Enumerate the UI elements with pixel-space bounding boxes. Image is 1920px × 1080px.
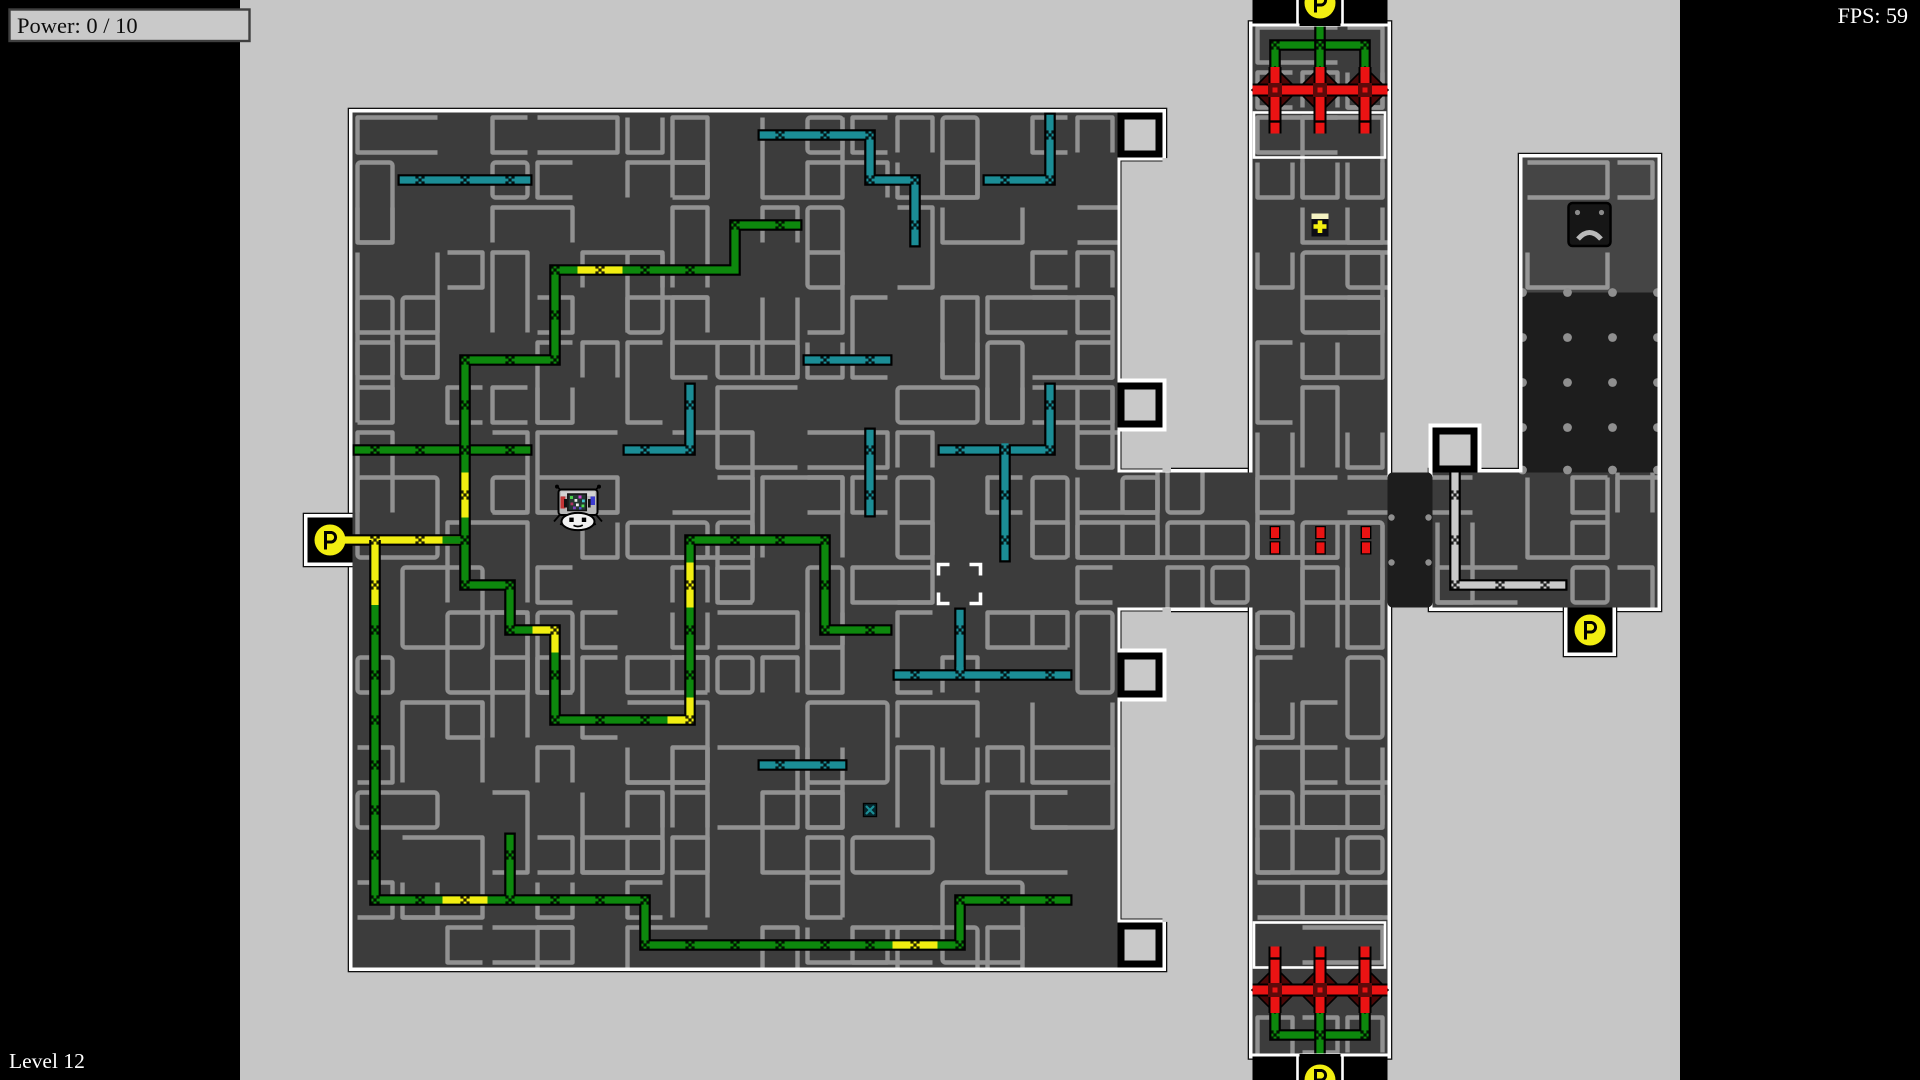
svg-text:FPS: 59: FPS: 59: [1838, 3, 1908, 28]
svg-text:Level 12: Level 12: [9, 1049, 85, 1073]
svg-text:Power: 0 / 10: Power: 0 / 10: [17, 13, 138, 38]
